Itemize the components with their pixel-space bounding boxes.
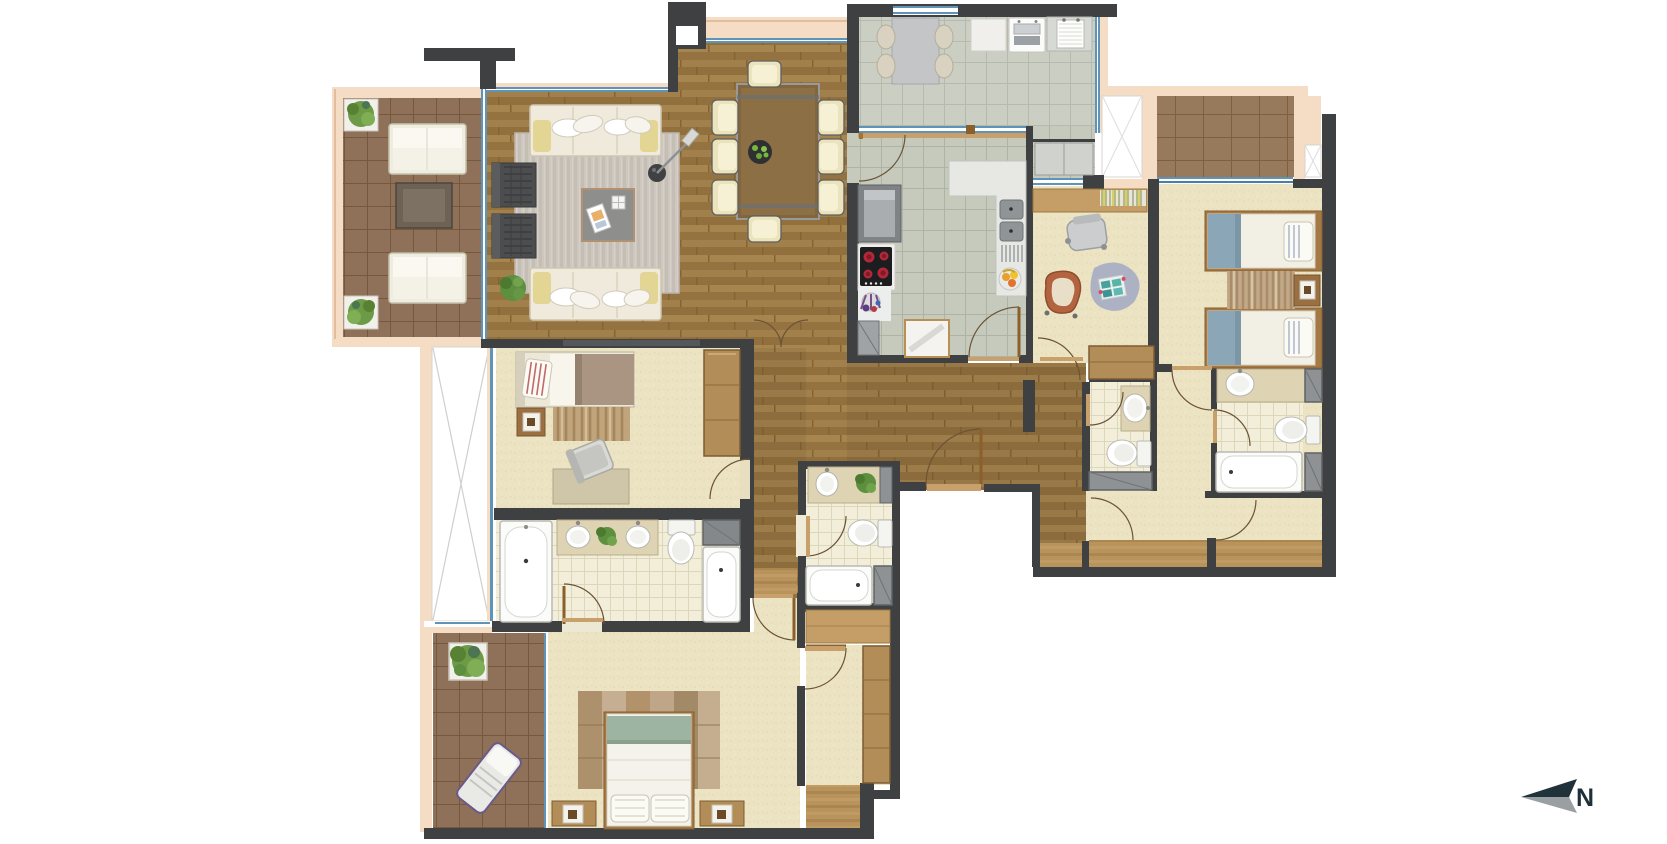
svg-text:N: N — [1576, 784, 1594, 812]
